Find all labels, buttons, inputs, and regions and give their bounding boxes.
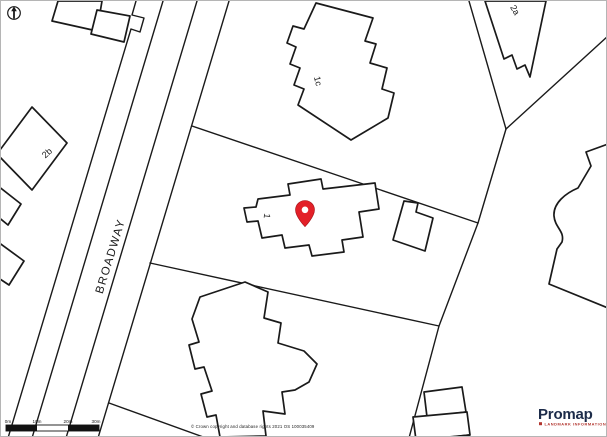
map-canvas[interactable]: BROADWAY 1 1c 2b 2a 0m 10m 20m 30m © Cro bbox=[1, 1, 607, 437]
scale-label: 10m bbox=[33, 419, 42, 424]
promap-map-view: BROADWAY 1 1c 2b 2a 0m 10m 20m 30m © Cro bbox=[0, 0, 607, 437]
promap-logo: Promap LANDMARK INFORMATION bbox=[538, 406, 606, 426]
pin-hole bbox=[302, 207, 309, 214]
building-outline bbox=[549, 144, 607, 308]
road-name-label: BROADWAY bbox=[94, 217, 128, 295]
building-outline bbox=[393, 201, 433, 251]
scale-label: 20m bbox=[64, 419, 73, 424]
landmark-square-icon bbox=[539, 422, 542, 425]
building-outline bbox=[91, 10, 130, 42]
scale-label: 0m bbox=[5, 419, 12, 424]
building-outline bbox=[1, 186, 21, 225]
building-outline-1c bbox=[287, 3, 394, 140]
plot-label-1: 1 bbox=[262, 213, 272, 219]
road-line bbox=[8, 1, 144, 437]
map-labels: BROADWAY 1 1c 2b 2a bbox=[40, 3, 522, 295]
road-line bbox=[32, 1, 163, 437]
copyright-notice: © Crown copyright and database rights 20… bbox=[191, 424, 315, 429]
landmark-tagline: LANDMARK INFORMATION bbox=[545, 421, 607, 426]
building-outline bbox=[413, 412, 470, 437]
building-outline bbox=[189, 282, 317, 437]
north-arrow-icon bbox=[8, 6, 21, 19]
scale-label: 30m bbox=[92, 419, 101, 424]
road-line bbox=[66, 1, 197, 437]
building-outline bbox=[1, 242, 24, 285]
scale-bar: 0m 10m 20m 30m bbox=[5, 419, 101, 431]
boundary-line bbox=[109, 403, 206, 437]
building-outline-2b bbox=[1, 107, 67, 190]
